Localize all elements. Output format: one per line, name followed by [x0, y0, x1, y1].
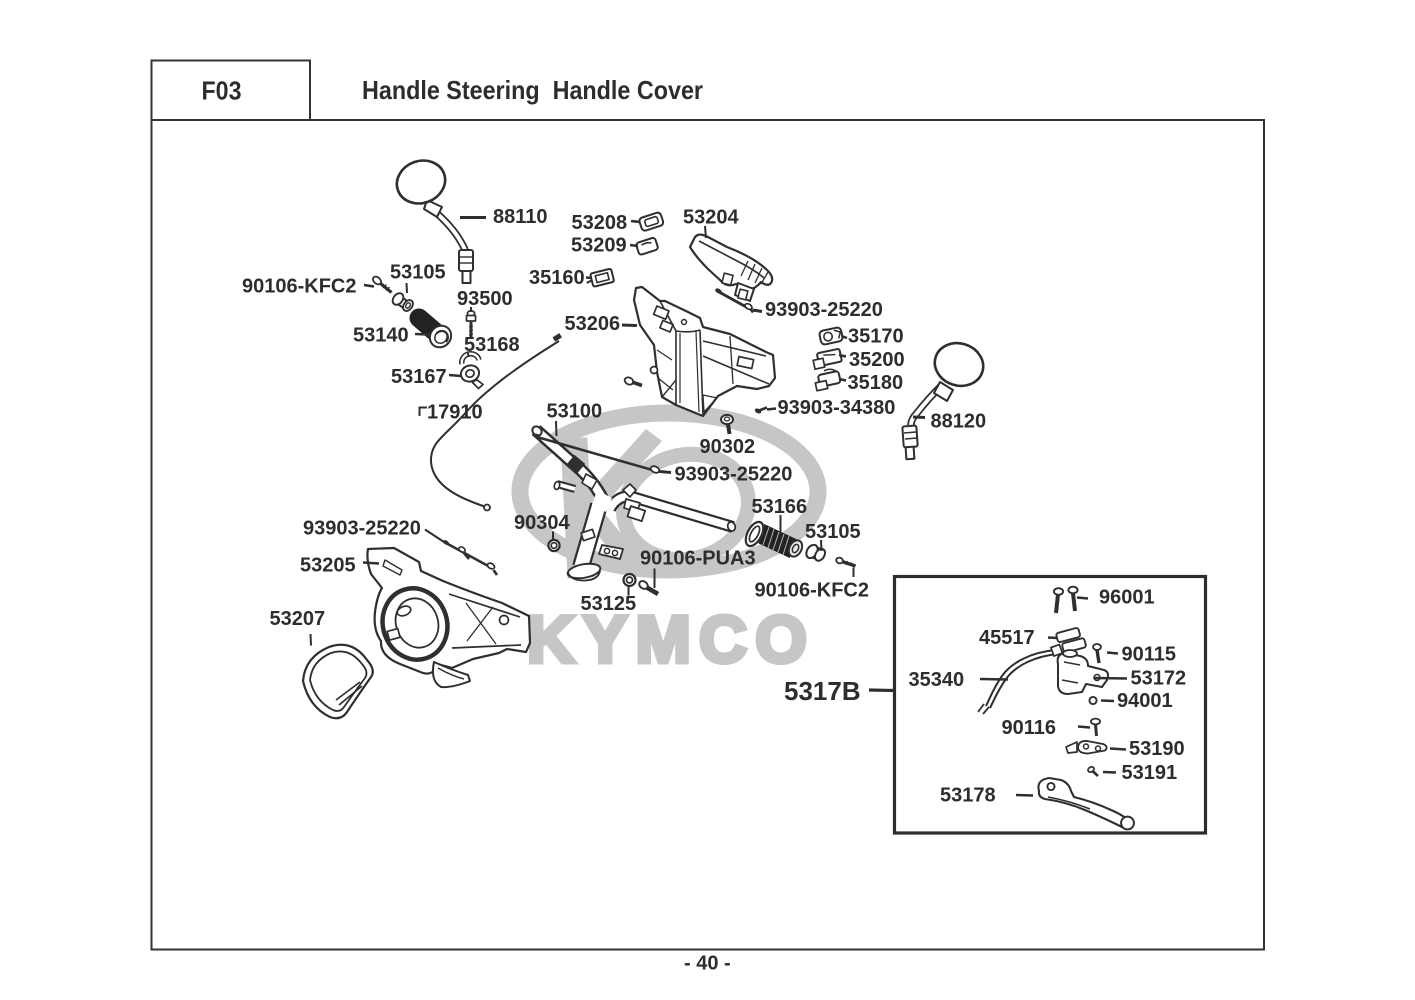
svg-text:5317B: 5317B — [784, 676, 861, 706]
svg-text:90106-KFC2: 90106-KFC2 — [755, 580, 870, 602]
svg-text:53105: 53105 — [805, 521, 861, 543]
svg-text:53167: 53167 — [391, 366, 447, 388]
svg-text:53125: 53125 — [581, 593, 637, 615]
svg-text:Handle Steering Handle Cover: Handle Steering Handle Cover — [362, 75, 703, 105]
svg-text:35160: 35160 — [529, 267, 585, 289]
svg-text:35180: 35180 — [848, 372, 904, 394]
svg-text:53209: 53209 — [571, 234, 627, 256]
svg-text:17910: 17910 — [427, 401, 483, 423]
svg-text:90116: 90116 — [1002, 717, 1057, 739]
svg-text:53205: 53205 — [300, 555, 356, 577]
svg-text:53191: 53191 — [1122, 762, 1178, 784]
svg-text:53206: 53206 — [565, 313, 621, 335]
svg-text:93500: 93500 — [457, 288, 513, 310]
svg-text:93903-25220: 93903-25220 — [765, 299, 883, 321]
svg-text:93903-34380: 93903-34380 — [778, 397, 896, 419]
svg-text:35170: 35170 — [848, 326, 904, 348]
svg-text:90302: 90302 — [700, 436, 756, 458]
svg-text:93903-25220: 93903-25220 — [303, 518, 421, 540]
svg-text:90304: 90304 — [514, 512, 570, 534]
svg-text:93903-25220: 93903-25220 — [675, 463, 793, 485]
svg-text:53140: 53140 — [353, 325, 409, 347]
svg-text:53178: 53178 — [940, 784, 996, 806]
svg-text:53190: 53190 — [1129, 738, 1185, 760]
svg-text:53105: 53105 — [390, 262, 446, 284]
svg-text:- 40 -: - 40 - — [684, 953, 731, 975]
svg-text:96001: 96001 — [1099, 586, 1155, 608]
svg-text:53172: 53172 — [1131, 667, 1187, 689]
svg-text:F03: F03 — [202, 76, 242, 106]
svg-text:35340: 35340 — [909, 669, 965, 691]
svg-text:90115: 90115 — [1122, 643, 1177, 665]
svg-text:53166: 53166 — [752, 496, 808, 518]
svg-text:88120: 88120 — [931, 411, 987, 433]
svg-text:53100: 53100 — [547, 401, 603, 423]
svg-text:94001: 94001 — [1117, 690, 1173, 712]
svg-text:45517: 45517 — [979, 627, 1035, 649]
svg-text:35200: 35200 — [849, 349, 905, 371]
svg-text:90106-PUA3: 90106-PUA3 — [640, 548, 756, 570]
svg-text:53204: 53204 — [683, 206, 739, 228]
svg-text:88110: 88110 — [493, 206, 548, 228]
svg-text:53207: 53207 — [270, 608, 326, 630]
svg-text:KYMCO: KYMCO — [527, 602, 815, 676]
svg-text:90106-KFC2: 90106-KFC2 — [242, 276, 357, 298]
svg-text:53168: 53168 — [464, 334, 520, 356]
svg-text:53208: 53208 — [572, 212, 628, 234]
